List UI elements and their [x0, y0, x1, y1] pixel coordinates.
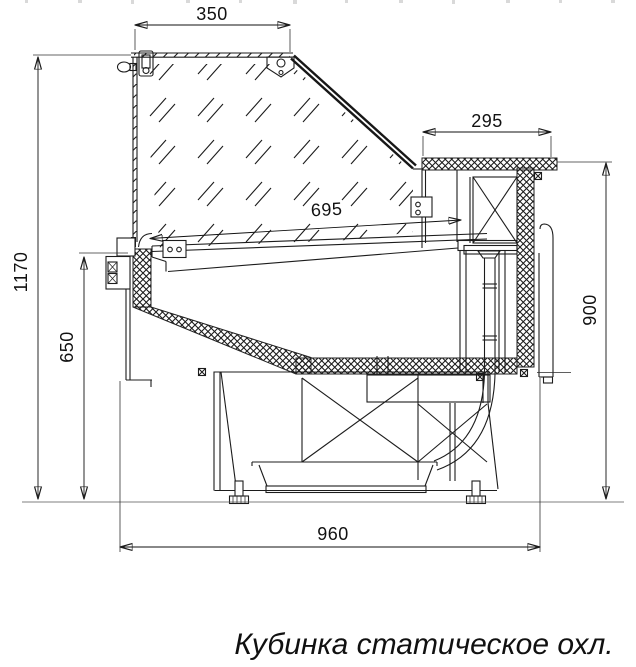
deck-support-legs: [460, 251, 505, 373]
dim-1170-label: 1170: [11, 252, 31, 293]
dim-295-label: 295: [471, 111, 503, 131]
dimension-960: 960: [120, 378, 540, 552]
base-frame: [214, 356, 498, 491]
evaporator-box: [464, 177, 517, 254]
dim-695-label: 695: [310, 199, 343, 221]
insulation-diagonal-wall: [133, 307, 311, 374]
dim-960-label: 960: [317, 524, 349, 544]
adjustable-foot-left: [230, 481, 249, 504]
condensate-tray: [252, 462, 437, 493]
display-case-section-drawing: 350 295 695 1170 650 900 960 Кубинка ста…: [0, 0, 636, 667]
drain-hose: [434, 374, 495, 470]
dimension-650: 650: [57, 253, 128, 499]
insulation-front-wall: [133, 249, 151, 307]
front-glass: [133, 57, 137, 245]
top-edge-remnants: [25, 0, 615, 4]
drain-pipe: [483, 258, 498, 374]
dimension-295: 295: [423, 111, 551, 157]
glass-area-hatching: [141, 64, 413, 248]
technical-drawing-page: 350 295 695 1170 650 900 960 Кубинка ста…: [0, 0, 636, 667]
dimension-350: 350: [135, 4, 290, 52]
dim-900-label: 900: [580, 294, 600, 326]
rear-cover: [537, 224, 571, 383]
drawing-caption: Кубинка статическое охл.: [234, 628, 613, 661]
dim-350-label: 350: [196, 4, 228, 24]
adjustable-foot-right: [467, 481, 486, 504]
dim-650-label: 650: [57, 331, 77, 363]
insulation-rear-top: [422, 158, 557, 170]
insulation-rear-column: [517, 168, 534, 367]
dimension-900: 900: [557, 162, 612, 499]
